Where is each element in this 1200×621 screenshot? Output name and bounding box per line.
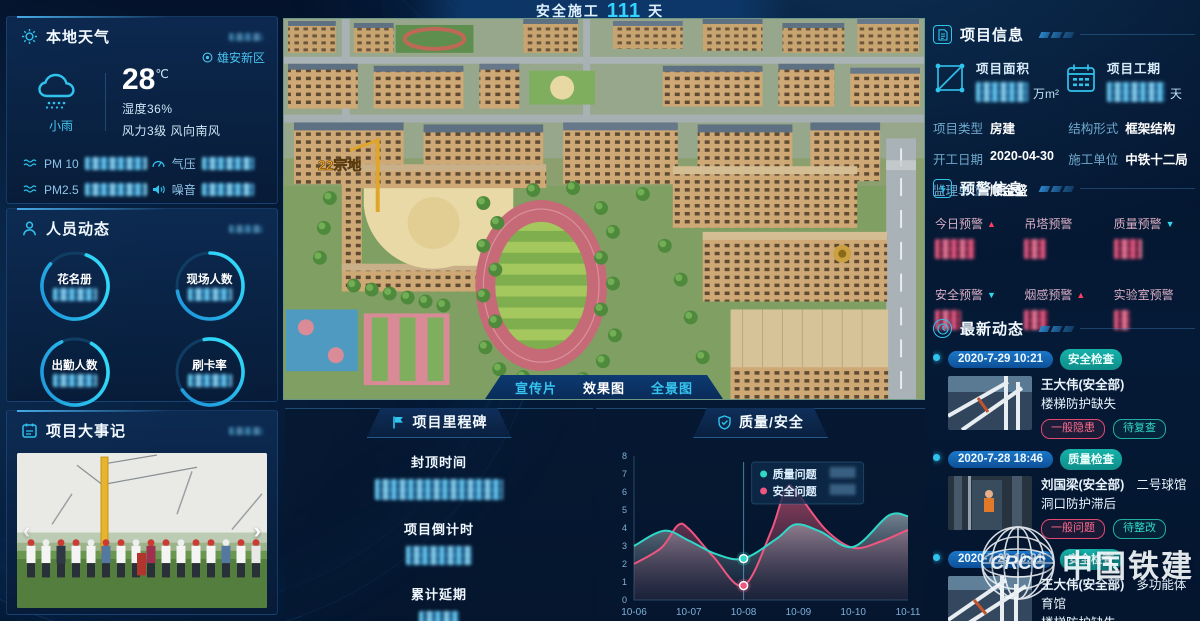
milestone-panel: 项目里程碑 封顶时间 项目倒计时 累计延期 <box>285 408 593 616</box>
weather-title: 本地天气 <box>46 26 110 47</box>
stat-ring-onsite[interactable]: 现场人数 <box>171 247 249 325</box>
personnel-rings: 花名册 现场人数 出勤人数 刷卡率 <box>7 247 277 411</box>
blurred-warning-count <box>935 239 975 259</box>
entry-date-badge: 2020-7-29 10:21 <box>948 351 1053 368</box>
humidity-label: 湿度36% <box>122 100 221 117</box>
blurred-value <box>53 374 97 387</box>
status-tag: 待整改 <box>1113 519 1166 539</box>
ring-label: 刷卡率 <box>171 357 249 373</box>
site-3d-view[interactable]: 22宗地 宣传片 效果图 全景图 <box>283 18 925 400</box>
temperature-value: 28℃ <box>122 65 221 95</box>
svg-text:6: 6 <box>622 487 627 497</box>
photo-prev-button[interactable]: ‹ <box>23 518 30 544</box>
blurred-value <box>85 157 147 170</box>
trend-arrow-icon: ▲ <box>1076 290 1085 300</box>
pressure-gauge-icon <box>151 157 166 170</box>
divider <box>105 73 106 131</box>
blurred-value <box>188 288 232 301</box>
flag-icon <box>391 415 406 430</box>
timeline-dot <box>933 554 940 561</box>
calendar-icon <box>1064 61 1098 95</box>
divider-decoration <box>1040 326 1195 332</box>
clock-icon <box>933 319 952 338</box>
milestone-label: 累计延期 <box>285 584 593 603</box>
target-icon <box>202 52 213 63</box>
sun-gear-icon <box>21 28 38 45</box>
svg-text:1: 1 <box>622 577 627 587</box>
ring-label: 出勤人数 <box>36 357 114 373</box>
blurred-warning-count <box>1024 239 1046 259</box>
document-icon <box>933 25 952 44</box>
blurred-warning-count <box>1114 239 1142 259</box>
tab-rendering[interactable]: 效果图 <box>583 378 625 397</box>
warning-quality: 质量预警▼ <box>1114 215 1195 264</box>
svg-text:2: 2 <box>622 559 627 569</box>
warning-today: 今日预警▲ <box>935 215 1016 264</box>
location-label: 雄安新区 <box>217 49 265 66</box>
svg-text:4: 4 <box>622 523 627 533</box>
shield-check-icon <box>717 415 732 430</box>
svg-text:10-09: 10-09 <box>786 607 812 618</box>
timeline-dot <box>933 454 940 461</box>
milestone-photo-panel: 项目大事记 ‹ › <box>6 410 278 615</box>
warning-crane: 吊塔预警 <box>1024 215 1105 264</box>
photo-next-button[interactable]: › <box>254 518 261 544</box>
temperature-unit: ℃ <box>155 67 168 81</box>
update-entry[interactable]: 2020-7-28 18:46 质量检查 刘国梁(安全部)二号球馆 洞口防护滞后… <box>933 449 1195 539</box>
stat-label: 项目工期 <box>1107 58 1182 77</box>
svg-text:7: 7 <box>622 469 627 479</box>
svg-text:8: 8 <box>622 451 627 461</box>
updates-title: 最新动态 <box>960 318 1024 339</box>
trend-arrow-icon: ▲ <box>987 219 996 229</box>
blurred-value <box>85 183 147 196</box>
blurred-value <box>188 374 232 387</box>
blurred-value <box>419 611 459 621</box>
entry-date-badge: 2020-7-28 18:46 <box>948 451 1053 468</box>
blurred-value <box>202 157 254 170</box>
blurred-value <box>375 479 503 500</box>
entry-photo[interactable] <box>948 576 1032 621</box>
svg-text:3: 3 <box>622 541 627 551</box>
milestone-title: 项目里程碑 <box>413 412 488 432</box>
warnings-section: 预警信息 今日预警▲ 吊塔预警 质量预警▼ 安全预警▼ 烟感预警▲ <box>933 178 1195 335</box>
ring-label: 花名册 <box>36 271 114 287</box>
entry-photo[interactable] <box>948 476 1032 530</box>
wind-label: 风力3级 风向南风 <box>122 122 221 139</box>
metric-label: 气压 <box>172 155 196 172</box>
blurred-value <box>202 183 254 196</box>
blurred-value <box>1107 82 1165 102</box>
metric-label: 噪音 <box>172 181 196 198</box>
location-badge[interactable]: 雄安新区 <box>202 49 265 66</box>
stat-project-duration: 项目工期 天 <box>1064 58 1195 102</box>
blurred-value <box>976 82 1028 102</box>
speaker-icon <box>151 183 166 196</box>
blurred-timestamp <box>229 225 263 233</box>
stat-ring-attendance[interactable]: 出勤人数 <box>36 333 114 411</box>
blurred-value <box>53 288 97 301</box>
svg-text:质量问题: 质量问题 <box>773 467 818 481</box>
svg-text:10-11: 10-11 <box>896 607 920 618</box>
entry-category-badge: 安全检查 <box>1060 549 1122 570</box>
timeline-dot <box>933 354 940 361</box>
divider-decoration <box>1040 186 1195 192</box>
svg-text:10-07: 10-07 <box>676 607 702 618</box>
milestone-label: 封顶时间 <box>285 452 593 471</box>
warnings-title: 预警信息 <box>960 178 1024 199</box>
ring-label: 现场人数 <box>171 271 249 287</box>
update-entry[interactable]: 2020-7-29 10:21 安全检查 王大伟(安全部)多功能体育馆 楼梯防护… <box>933 549 1195 621</box>
events-title: 项目大事记 <box>46 420 126 441</box>
project-info-section: 项目信息 项目面积 万m² 项目工期 天 <box>933 24 1195 199</box>
mist-icon <box>23 157 38 170</box>
metric-pressure: 气压 <box>151 155 267 172</box>
metric-noise: 噪音 <box>151 181 267 198</box>
events-photo[interactable]: ‹ › <box>17 453 267 608</box>
person-icon <box>21 220 38 237</box>
update-entry[interactable]: 2020-7-29 10:21 安全检查 王大伟(安全部) 楼梯防护缺失 一般隐… <box>933 349 1195 439</box>
metric-pm10: PM 10 <box>23 155 147 172</box>
field-start-date: 开工日期2020-04-30 <box>933 149 1062 168</box>
view-tabs: 宣传片 效果图 全景图 <box>485 375 723 399</box>
entry-category-badge: 质量检查 <box>1060 449 1122 470</box>
hazard-tag: 一般问题 <box>1041 519 1105 539</box>
stat-unit: 万m² <box>1033 85 1059 102</box>
weather-condition: 小雨 <box>29 117 93 134</box>
tab-panorama[interactable]: 全景图 <box>651 378 693 397</box>
trend-arrow-icon: ▼ <box>987 290 996 300</box>
stat-label: 项目面积 <box>976 58 1059 77</box>
entry-photo[interactable] <box>948 376 1032 430</box>
chart-title: 质量/安全 <box>739 412 804 432</box>
status-tag: 待复查 <box>1113 419 1166 439</box>
svg-text:5: 5 <box>622 505 627 515</box>
metric-label: PM 10 <box>44 157 79 171</box>
quality-safety-chart[interactable]: 01234567810-0610-0710-0810-0910-1010-11质… <box>602 440 925 621</box>
metric-pm25: PM2.5 <box>23 181 147 198</box>
field-project-type: 项目类型房建 <box>933 118 1062 137</box>
tab-promo-video[interactable]: 宣传片 <box>515 378 557 397</box>
stat-unit: 天 <box>1170 85 1182 102</box>
personnel-panel: 人员动态 花名册 现场人数 出勤人数 刷卡率 <box>6 208 278 402</box>
calendar-book-icon <box>21 422 38 439</box>
entry-category-badge: 安全检查 <box>1060 349 1122 370</box>
blurred-timestamp <box>229 427 263 435</box>
milestone-label: 项目倒计时 <box>285 519 593 538</box>
field-structure-form: 结构形式框架结构 <box>1068 118 1195 137</box>
hazard-tag: 一般隐患 <box>1041 419 1105 439</box>
svg-text:安全问题: 安全问题 <box>773 484 818 498</box>
rain-cloud-icon <box>35 97 87 114</box>
blurred-timestamp <box>229 33 263 41</box>
latest-updates-section: 最新动态 2020-7-29 10:21 安全检查 王大伟(安全部) 楼梯防护缺… <box>933 318 1195 621</box>
personnel-title: 人员动态 <box>46 218 110 239</box>
construction-dashboard: 安全施工 111 天 本地天气 雄安新区 小雨 28℃ <box>0 0 1200 621</box>
stat-ring-swipe-rate[interactable]: 刷卡率 <box>171 333 249 411</box>
svg-text:10-06: 10-06 <box>621 607 647 618</box>
divider-decoration <box>1040 32 1195 38</box>
weather-panel: 本地天气 雄安新区 小雨 28℃ 湿度36% 风力3级 风向南风 <box>6 16 278 204</box>
entry-date-badge: 2020-7-29 10:21 <box>948 551 1053 568</box>
stat-ring-roster[interactable]: 花名册 <box>36 247 114 325</box>
svg-text:0: 0 <box>622 595 627 605</box>
alarm-icon <box>933 179 952 198</box>
svg-text:10-08: 10-08 <box>731 607 757 618</box>
stat-project-area: 项目面积 万m² <box>933 58 1064 102</box>
plot-label: 22宗地 <box>318 157 361 173</box>
quality-safety-panel: 质量/安全 01234567810-0610-0710-0810-0910-10… <box>596 408 925 616</box>
svg-text:10-10: 10-10 <box>840 607 866 618</box>
field-contractor: 施工单位中铁十二局 <box>1068 149 1195 168</box>
metric-label: PM2.5 <box>44 183 79 197</box>
project-info-title: 项目信息 <box>960 24 1024 45</box>
area-measure-icon <box>933 61 967 95</box>
trend-arrow-icon: ▼ <box>1166 219 1175 229</box>
mist-icon <box>23 183 38 196</box>
blurred-value <box>406 546 472 565</box>
